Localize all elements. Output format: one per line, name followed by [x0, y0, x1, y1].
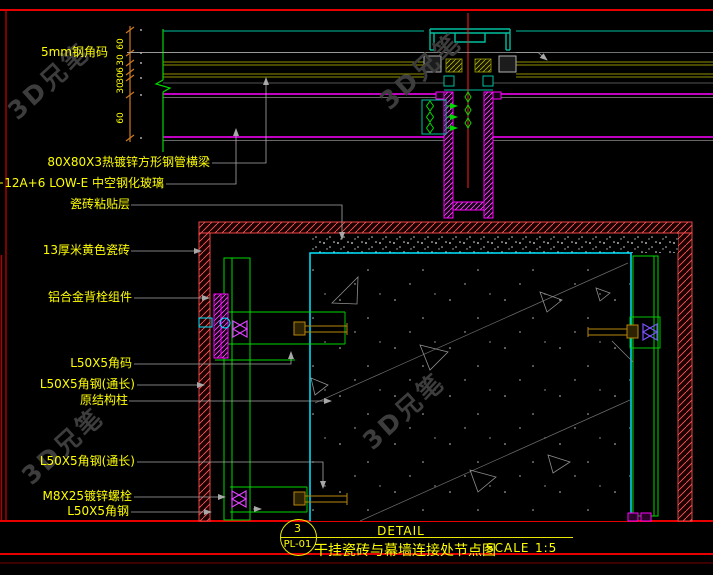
aluminum-rail — [221, 294, 228, 358]
steel-angle-clip-right — [499, 56, 516, 72]
tile-adhesive-band — [311, 234, 678, 253]
bolt-symbol — [643, 324, 657, 340]
label-beige-tile: 13厚米黄色瓷砖 — [43, 244, 130, 257]
label-tile-adhesive-layer: 瓷砖粘贴层 — [70, 198, 130, 211]
scale-value: 1:5 — [535, 541, 557, 555]
tile-band-top — [199, 222, 692, 233]
label-back-bolt-assembly: 铝合金背栓组件 — [48, 291, 132, 304]
dimension-values: 60 30 6 30 30 60 — [116, 38, 126, 124]
break-line — [156, 29, 170, 152]
setting-block — [475, 59, 491, 72]
detail-bubble-code: PL-01 — [278, 539, 317, 550]
tile-band-right — [678, 233, 692, 521]
label-insulated-glass: 6+12A+6 LOW-E 中空钢化玻璃 — [0, 177, 164, 190]
dimension-value: 30 — [116, 82, 126, 94]
label-galvanized-bolt: M8X25镀锌螺栓 — [43, 490, 132, 503]
label-steel-angle-clip: 5mm钢角码 — [41, 46, 108, 59]
tile-band-left — [199, 233, 210, 521]
label-structural-column: 原结构柱 — [80, 394, 128, 407]
dimension-value: 30 — [116, 54, 126, 66]
bolt-symbol — [233, 321, 247, 337]
dimension-value: 60 — [116, 38, 126, 50]
dimension-value: 60 — [116, 112, 126, 124]
cad-viewport: 60 30 6 30 30 60 — [0, 0, 713, 575]
scale-label: SCALE — [486, 541, 529, 555]
label-angle-steel: L50X5角钢 — [67, 505, 129, 518]
extension-dots — [140, 29, 142, 139]
aluminum-rail — [214, 294, 221, 358]
label-angle-steel-continuous-2: L50X5角钢(通长) — [40, 455, 135, 468]
dimension-line: 60 30 6 30 30 60 — [116, 26, 142, 142]
label-steel-tube-beam: 80X80X3热镀锌方形钢管横梁 — [47, 156, 210, 169]
label-angle-code: L50X5角码 — [70, 357, 132, 370]
drawing-title: 干挂瓷砖与幕墙连接处节点图 — [314, 540, 496, 560]
bolt-symbol — [232, 491, 246, 507]
dimension-value: 30 — [116, 72, 126, 84]
concrete-column — [310, 253, 631, 521]
dimension-value: 6 — [116, 67, 126, 73]
label-angle-steel-continuous-1: L50X5角钢(通长) — [40, 378, 135, 391]
detail-bubble-number: 3 — [280, 522, 315, 535]
detail-label: DETAIL — [370, 524, 432, 538]
